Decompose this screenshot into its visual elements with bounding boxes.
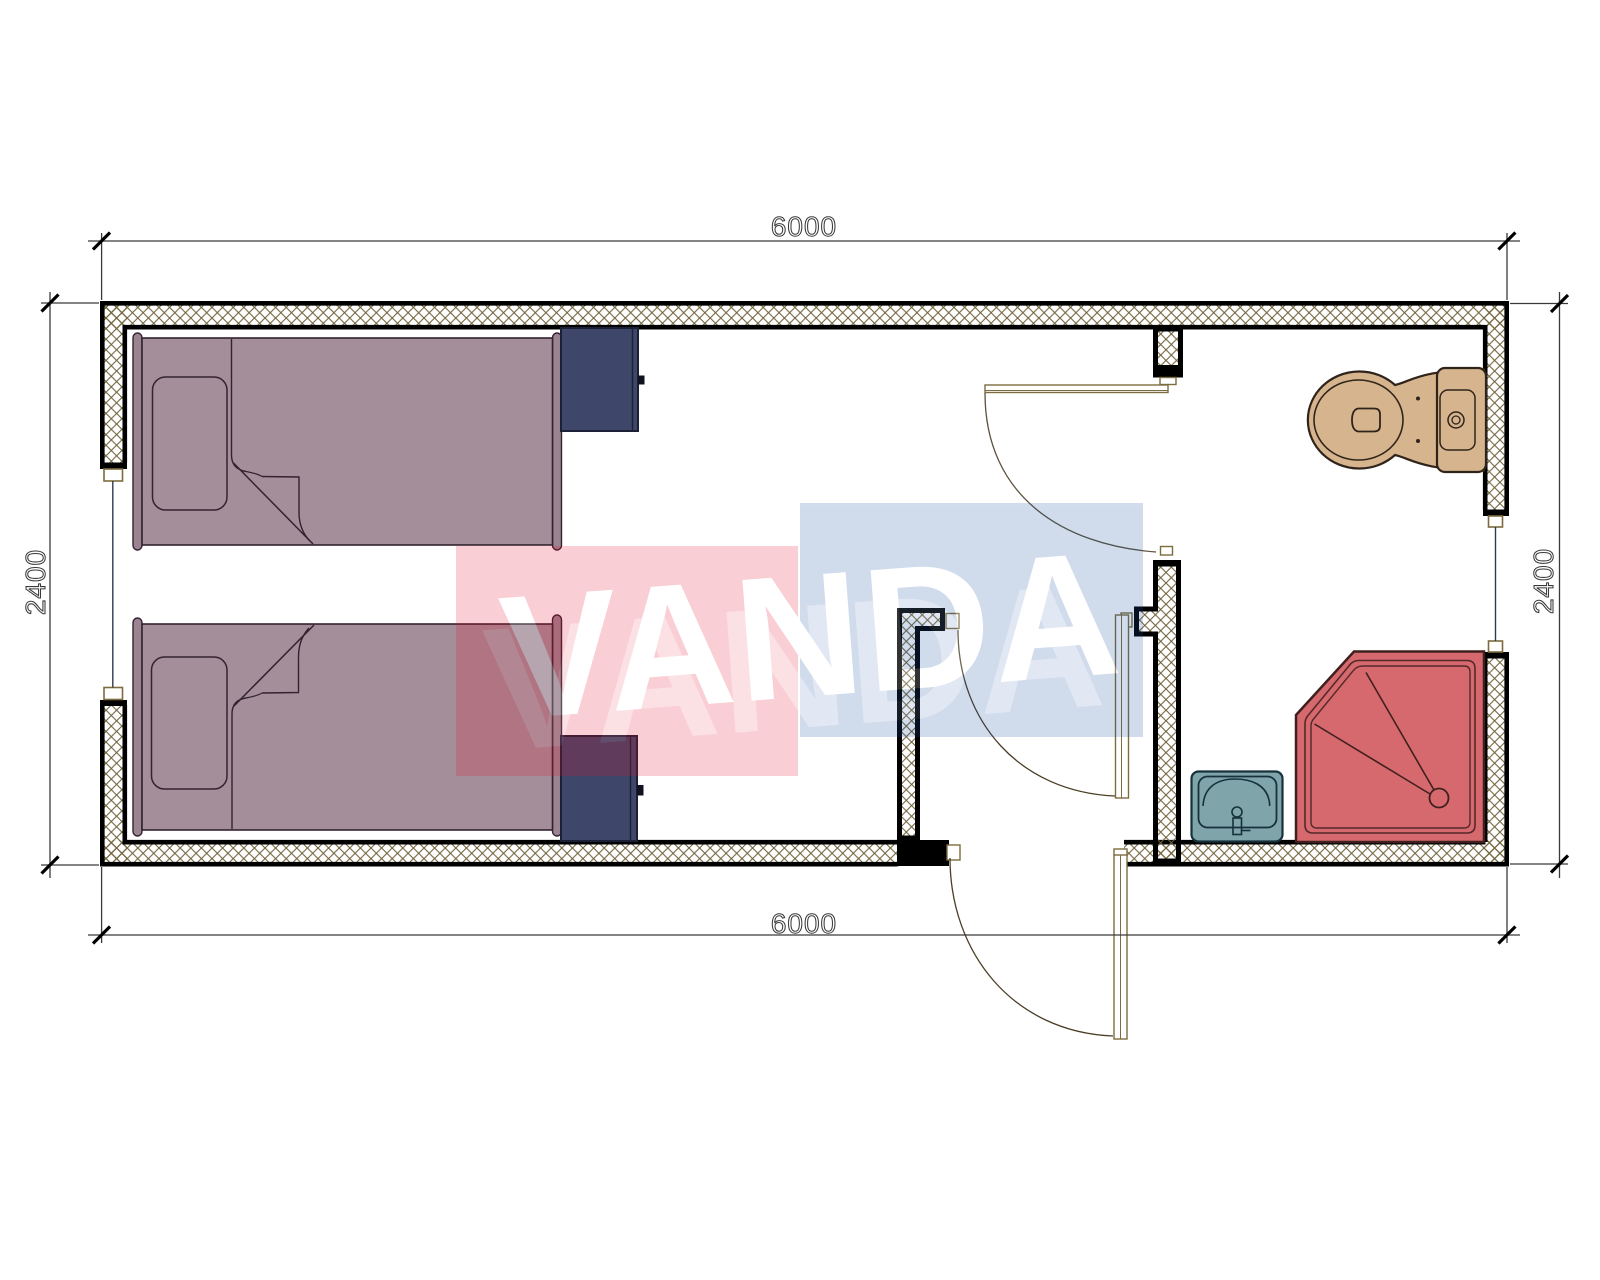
svg-text:2400: 2400 [20,549,51,615]
svg-text:6000: 6000 [771,908,837,939]
svg-text:2400: 2400 [1528,548,1559,614]
svg-text:6000: 6000 [771,211,837,242]
